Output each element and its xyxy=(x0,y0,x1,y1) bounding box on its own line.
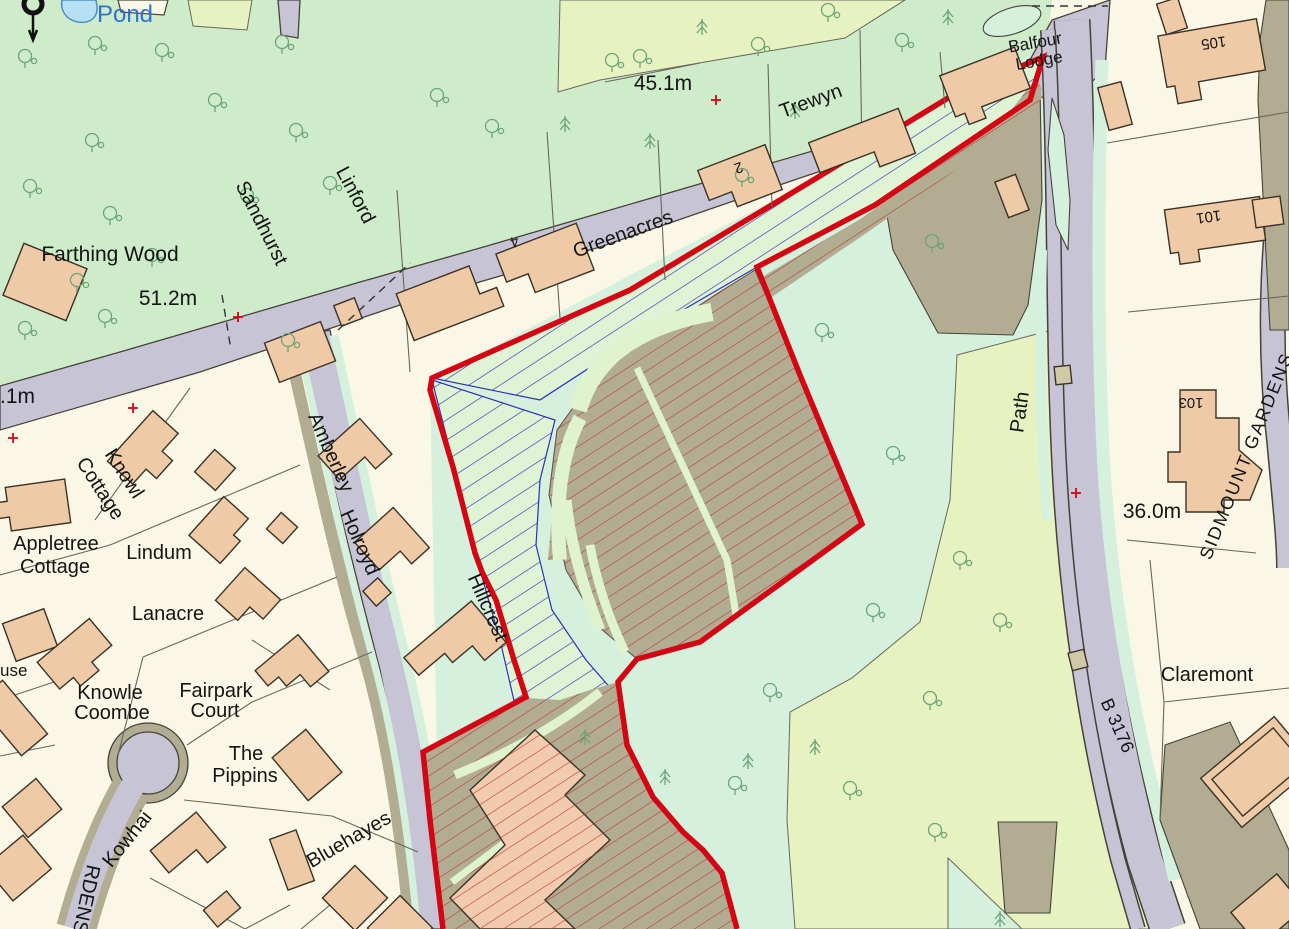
label-farthing-wood: Farthing Wood xyxy=(41,243,178,266)
label-101: 101 xyxy=(1195,206,1222,226)
label-fairpark-2: Court xyxy=(191,700,240,722)
label-fairpark-1: Fairpark xyxy=(179,680,253,702)
label-elev-51-2: 51.2m xyxy=(139,287,197,310)
label-103: 103 xyxy=(1178,394,1203,411)
label-knowle-1: Knowle xyxy=(77,682,143,704)
label-appletree-1: Appletree xyxy=(13,533,99,555)
label-house-partial: use xyxy=(0,661,27,680)
label-elev-45-1: 45.1m xyxy=(634,72,692,95)
gate-marker xyxy=(1068,649,1088,670)
label-lanacre: Lanacre xyxy=(132,603,204,625)
gate-marker xyxy=(1054,365,1072,385)
label-elev-36-0: 36.0m xyxy=(1123,500,1181,523)
label-elev-left: .1m xyxy=(0,385,35,408)
label-knowle-2: Coombe xyxy=(74,702,150,724)
building xyxy=(1252,196,1284,228)
label-claremont: Claremont xyxy=(1161,664,1254,686)
field-top-left xyxy=(188,0,252,30)
label-pond: Pond xyxy=(97,1,153,28)
label-pippins-1: The xyxy=(229,743,263,765)
label-105: 105 xyxy=(1200,32,1227,52)
label-appletree-2: Cottage xyxy=(20,556,90,578)
road-stub xyxy=(278,0,300,38)
building-appletree xyxy=(0,479,71,532)
label-lindum: Lindum xyxy=(126,542,192,564)
map-canvas: Pond Farthing Wood 51.2m 45.1m 36.0m .1m… xyxy=(0,0,1289,929)
olive-track-se1 xyxy=(998,822,1057,913)
label-pippins-2: Pippins xyxy=(212,765,278,787)
verge-b3176-west xyxy=(1041,250,1047,520)
